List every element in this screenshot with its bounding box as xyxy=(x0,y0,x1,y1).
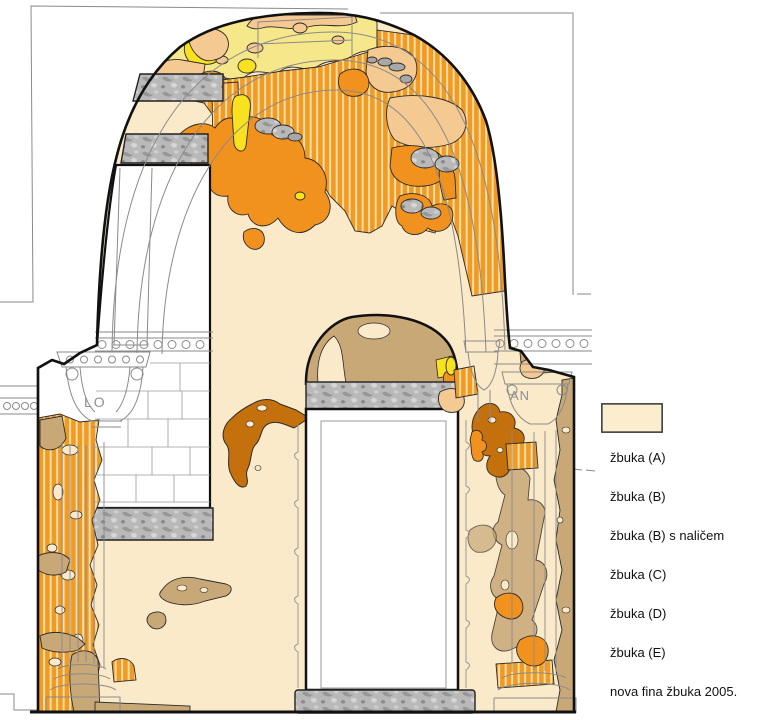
kamen-stone xyxy=(288,133,302,141)
plaster-zbuka-c xyxy=(295,192,305,200)
stone-band-niche-base xyxy=(90,508,213,540)
legend-item-zbuka-b-nalicem: žbuka (B) s naličem xyxy=(601,520,778,550)
legend-item-zbuka-c: žbuka (C) xyxy=(601,559,778,589)
plaster-zbuka-b xyxy=(338,69,368,96)
kamen-stone xyxy=(421,207,441,219)
legend-item-zbuka-e: žbuka (E) xyxy=(601,637,778,667)
legend-label: žbuka (A) xyxy=(610,450,666,465)
swatch-nova-fina xyxy=(601,403,663,433)
kamen-stone xyxy=(367,57,377,63)
step-outline xyxy=(0,694,38,710)
legend-label: žbuka (D) xyxy=(610,606,666,621)
right-capital-inscription: AN xyxy=(510,388,530,403)
lunette-cream-gap xyxy=(358,323,390,339)
legend-item-zbuka-a: žbuka (A) xyxy=(601,442,778,472)
legend-label: žbuka (E) xyxy=(610,645,666,660)
legend-item-zbuka-b: žbuka (B) xyxy=(601,481,778,511)
plaster-zbuka-c xyxy=(238,59,256,73)
conservation-elevation-page: LO AN kamen žbuka (A) žbuka (B) žbuka (B… xyxy=(0,0,778,720)
legend-label: žbuka (C) xyxy=(610,567,666,582)
stone-sill xyxy=(295,690,475,713)
left-capital-inscription: LO xyxy=(84,394,107,410)
left-entablature xyxy=(0,386,38,414)
leader-dashes xyxy=(574,469,595,471)
legend-label: nova fina žbuka 2005. xyxy=(610,684,737,699)
door-void xyxy=(306,409,458,690)
stone-band-lower xyxy=(121,134,208,163)
legend-item-zbuka-d: žbuka (D) xyxy=(601,598,778,628)
legend-label: žbuka (B) s naličem xyxy=(610,528,724,543)
legend-label: žbuka (B) xyxy=(610,489,666,504)
kamen-stone xyxy=(401,199,423,213)
stone-lintel xyxy=(306,382,458,409)
doorway xyxy=(295,315,475,713)
legend-item-nova-fina: nova fina žbuka 2005. xyxy=(601,676,778,706)
kamen-stone xyxy=(389,63,405,71)
plaster-zbuka-b-stripes xyxy=(506,442,538,470)
plaster-zbuka-a xyxy=(293,23,307,33)
plaster-zbuka-b-stripes xyxy=(454,366,478,398)
kamen-stone xyxy=(400,75,412,83)
legend: kamen žbuka (A) žbuka (B) žbuka (B) s na… xyxy=(601,403,778,715)
